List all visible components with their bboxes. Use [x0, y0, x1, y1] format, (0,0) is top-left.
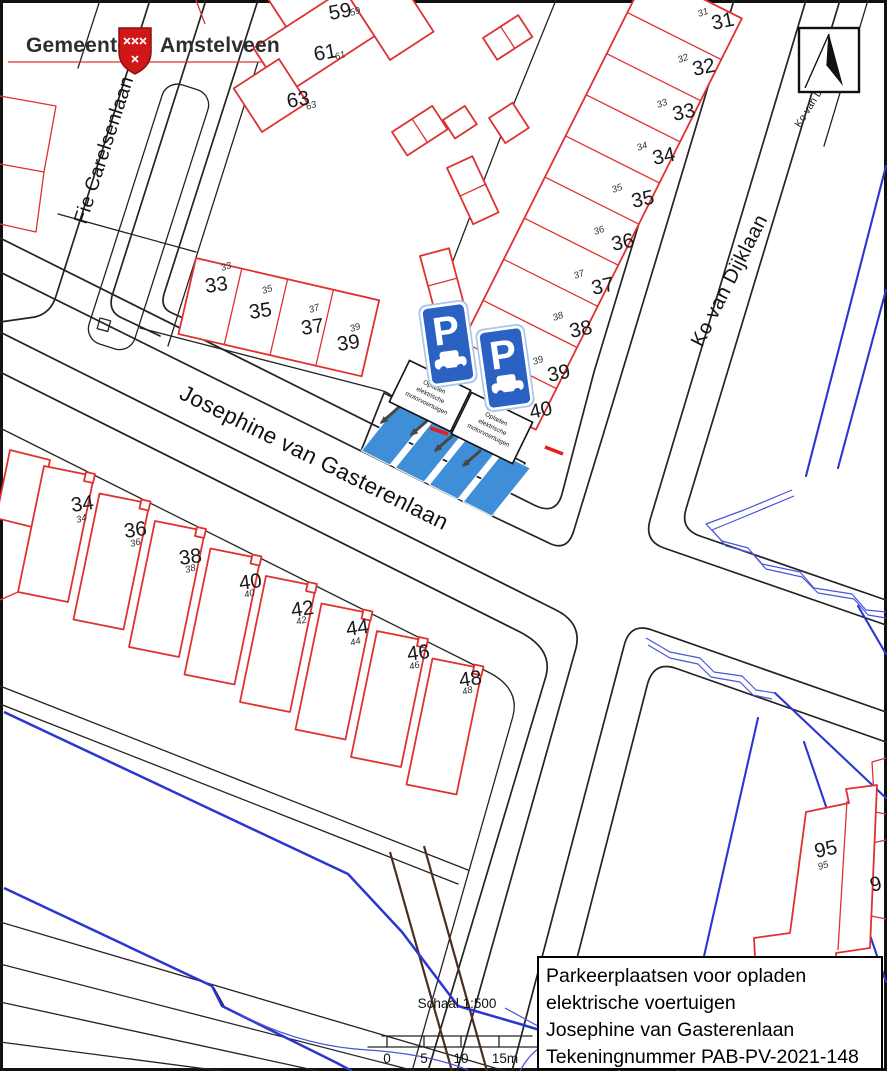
title-line: Parkeerplaatsen voor opladen [546, 965, 806, 987]
house-number: 35 [247, 298, 273, 324]
terrace-porch [195, 527, 206, 538]
house-number: 39 [335, 330, 361, 356]
house-number: 36 [609, 229, 636, 256]
house-number: 39 [545, 360, 572, 387]
scale-tick: 15m [492, 1051, 518, 1066]
house-number: 32 [690, 54, 717, 81]
terrace-porch [84, 472, 95, 483]
title-line: Tekeningnummer PAB-PV-2021-148 [546, 1046, 859, 1068]
title-line: elektrische voertuigen [546, 992, 736, 1014]
house-number: 35 [629, 186, 656, 213]
logo-text-amstelveen: Amstelveen [160, 34, 280, 57]
title-block: Parkeerplaatsen voor opladen elektrische… [538, 957, 882, 1069]
terrace-porch [140, 500, 151, 511]
house-number: 37 [299, 314, 325, 340]
house-number: 33 [670, 99, 697, 126]
scale-tick: 5 [420, 1051, 428, 1066]
terrace-porch [306, 582, 317, 593]
house-number: 31 [709, 8, 736, 35]
terrace-porch [251, 555, 262, 566]
title-line: Josephine van Gasterenlaan [546, 1019, 794, 1041]
house-number: 34 [650, 143, 677, 170]
north-arrow-icon [799, 28, 859, 92]
scale-tick: 10 [453, 1051, 468, 1066]
logo-text-gemeente: Gemeente [26, 34, 129, 57]
scale-tick: 0 [383, 1051, 391, 1066]
house-number: 38 [567, 316, 594, 343]
house-number: 33 [203, 272, 229, 298]
scale-label: Schaal 1:500 [418, 996, 497, 1011]
house-number: 37 [589, 273, 616, 300]
map-canvas: 3131323233333434353536363737383839394040… [0, 0, 887, 1071]
